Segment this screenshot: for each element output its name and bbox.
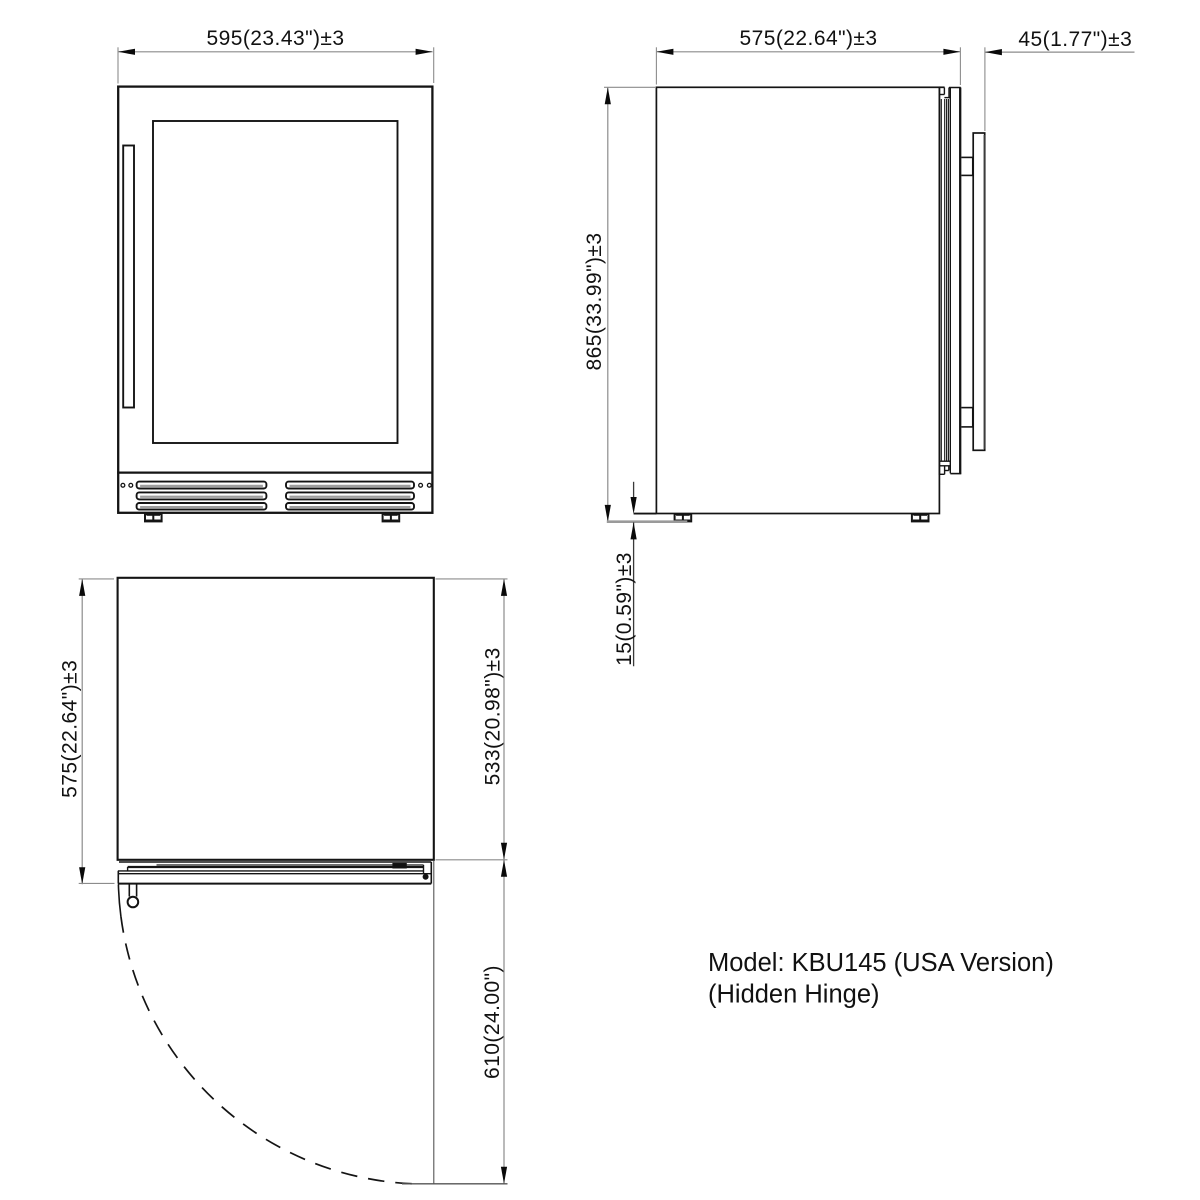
svg-text:15(0.59")±3: 15(0.59")±3	[613, 552, 636, 666]
svg-text:610(24.00"): 610(24.00")	[481, 965, 504, 1079]
svg-text:575(22.64")±3: 575(22.64")±3	[739, 27, 877, 50]
svg-text:45(1.77")±3: 45(1.77")±3	[1018, 28, 1132, 51]
svg-text:(Hidden Hinge): (Hidden Hinge)	[708, 981, 880, 1009]
svg-text:Model: KBU145 (USA Version): Model: KBU145 (USA Version)	[708, 949, 1054, 977]
svg-text:533(20.98")±3: 533(20.98")±3	[482, 647, 505, 785]
svg-text:595(23.43")±3: 595(23.43")±3	[206, 27, 344, 50]
svg-text:575(22.64")±3: 575(22.64")±3	[59, 660, 82, 798]
svg-text:865(33.99")±3: 865(33.99")±3	[583, 232, 606, 370]
